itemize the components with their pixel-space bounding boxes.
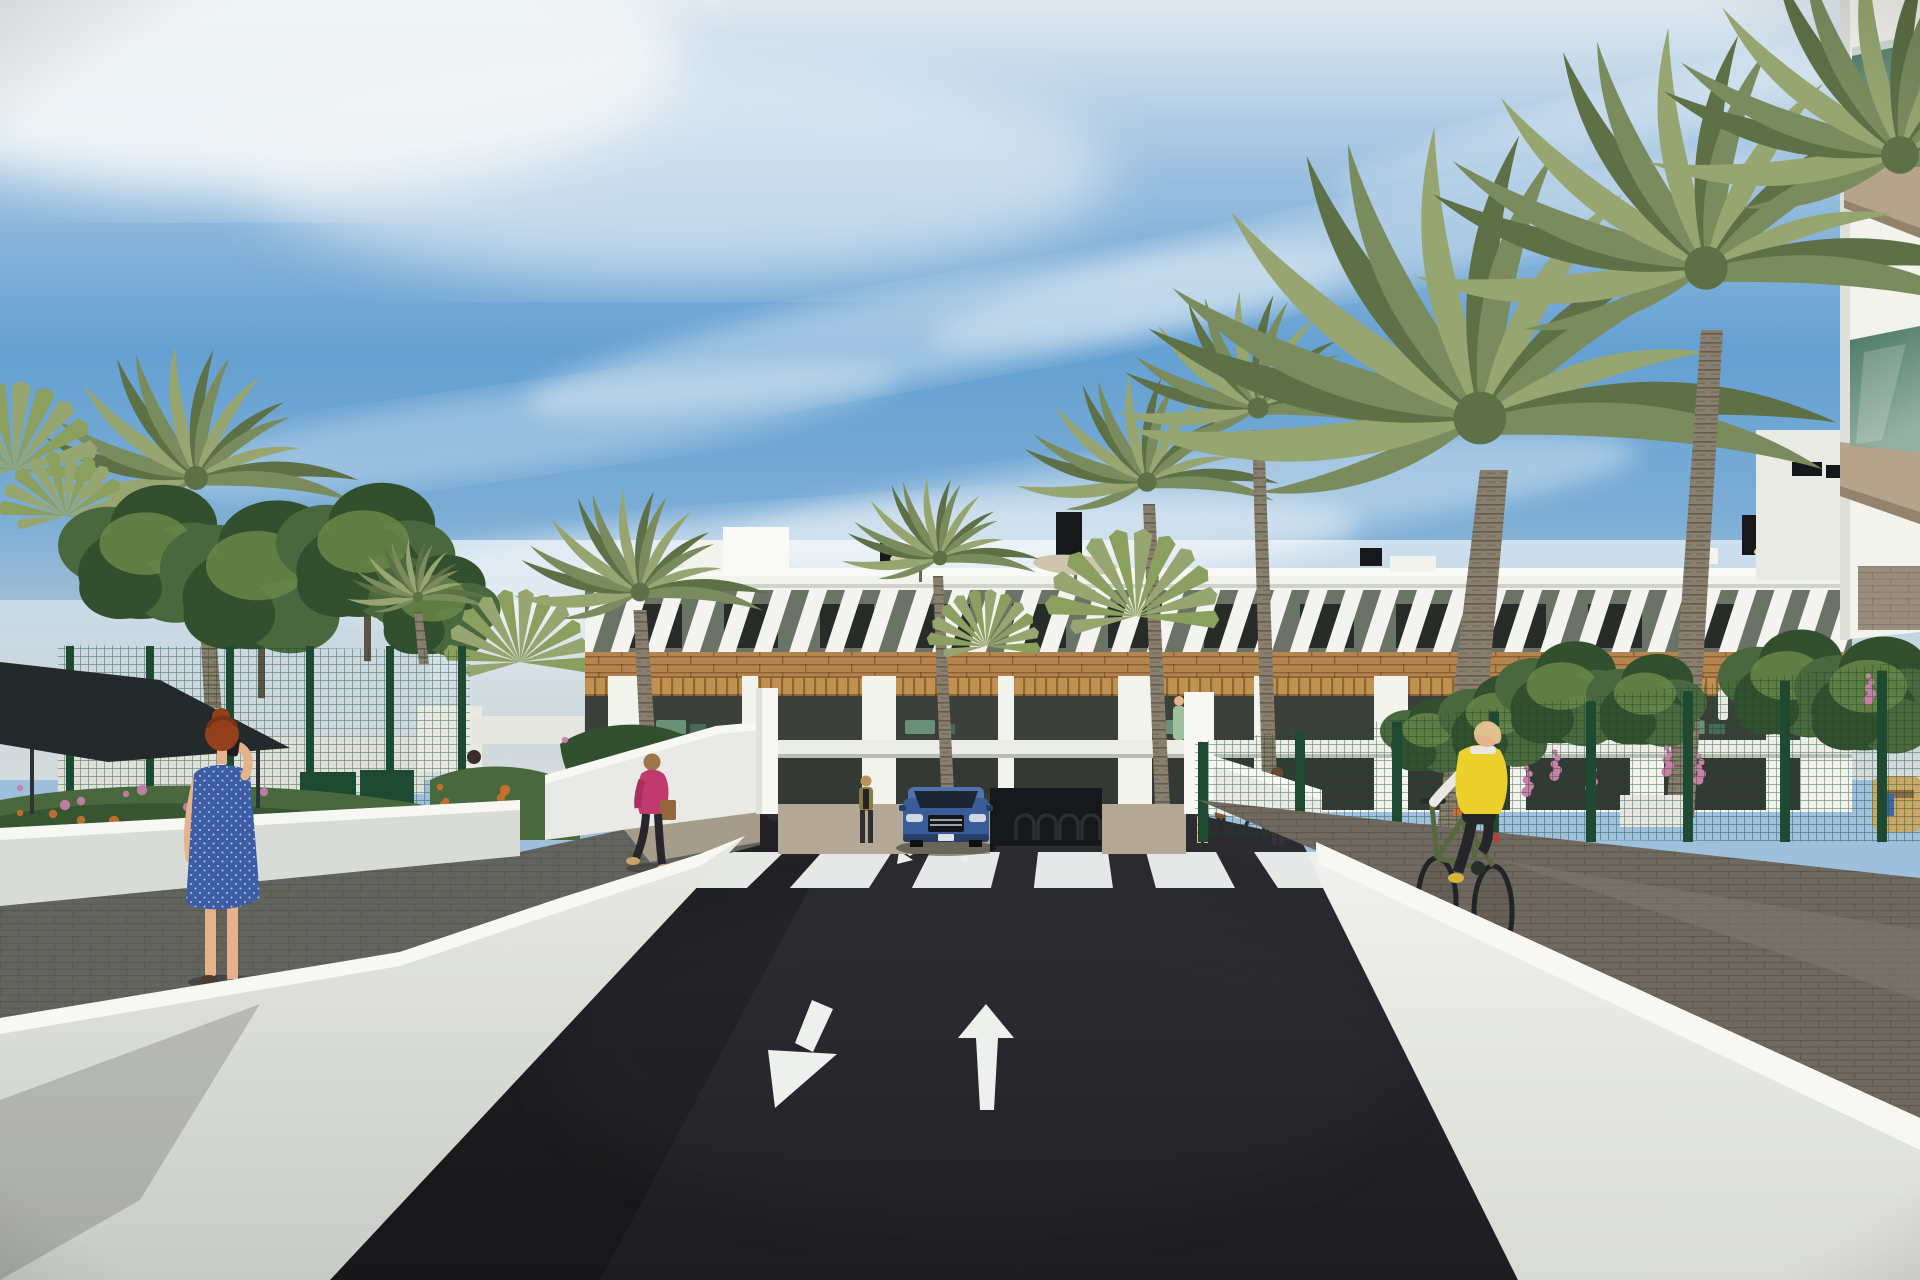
vignette [0,0,1920,1280]
render-viewport: Residential complex exterior render [0,0,1920,1280]
scene-svg: Residential complex exterior render [0,0,1920,1280]
